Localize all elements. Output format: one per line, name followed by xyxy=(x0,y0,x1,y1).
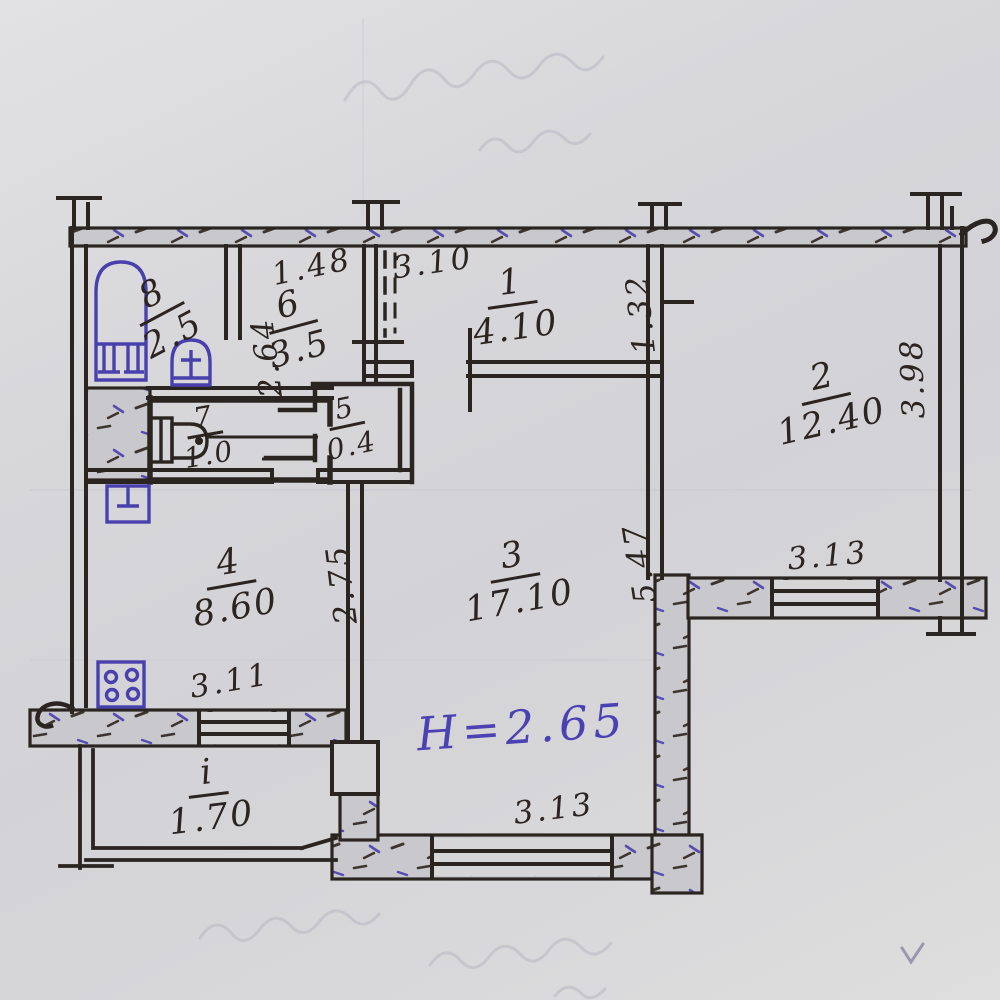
kitchen-window xyxy=(199,710,289,746)
room3-window xyxy=(432,836,612,878)
right-exterior-wall xyxy=(940,228,962,618)
room-4-number: 4 xyxy=(200,542,257,591)
bathroom-divider xyxy=(226,246,240,338)
kitchen-bottom-wall xyxy=(30,710,346,746)
left-wall-block xyxy=(86,388,150,480)
pencil-bleed-through-top xyxy=(345,54,603,152)
room2-window xyxy=(772,578,878,618)
room-3-number: 3 xyxy=(484,535,541,584)
check-mark xyxy=(902,944,923,962)
room-1-number: 1 xyxy=(482,262,537,310)
top-exterior-wall xyxy=(70,228,966,246)
room3-bottom-step xyxy=(652,835,702,893)
balcony-side-wall xyxy=(340,792,378,840)
scanned-floor-plan: 8 2.5 6 3.5 1 4.10 2 12.40 5 0.4 7 1.0 4… xyxy=(0,0,1000,1000)
room-7-number: 7 xyxy=(183,401,224,440)
pencil-bleed-through-bottom xyxy=(200,911,611,998)
dim-room2-side: 3.98 xyxy=(894,337,933,419)
left-exterior-wall xyxy=(72,228,86,712)
floorplan-drawing xyxy=(0,0,1000,1000)
kitchen-sink-icon xyxy=(107,486,149,522)
stove-icon xyxy=(98,662,144,707)
balcony-label: i 1.70 xyxy=(161,750,256,843)
balcony-door xyxy=(332,742,378,794)
dim-room2-window: 3.13 xyxy=(786,535,870,578)
right-bottom-step xyxy=(928,618,974,634)
room-4-label: 4 8.60 xyxy=(182,539,281,636)
top-wall-stubs xyxy=(58,194,960,228)
balcony-number: i xyxy=(184,753,228,798)
room-1-label: 1 4.10 xyxy=(465,260,562,354)
bathroom-bottom-wall xyxy=(148,388,332,398)
